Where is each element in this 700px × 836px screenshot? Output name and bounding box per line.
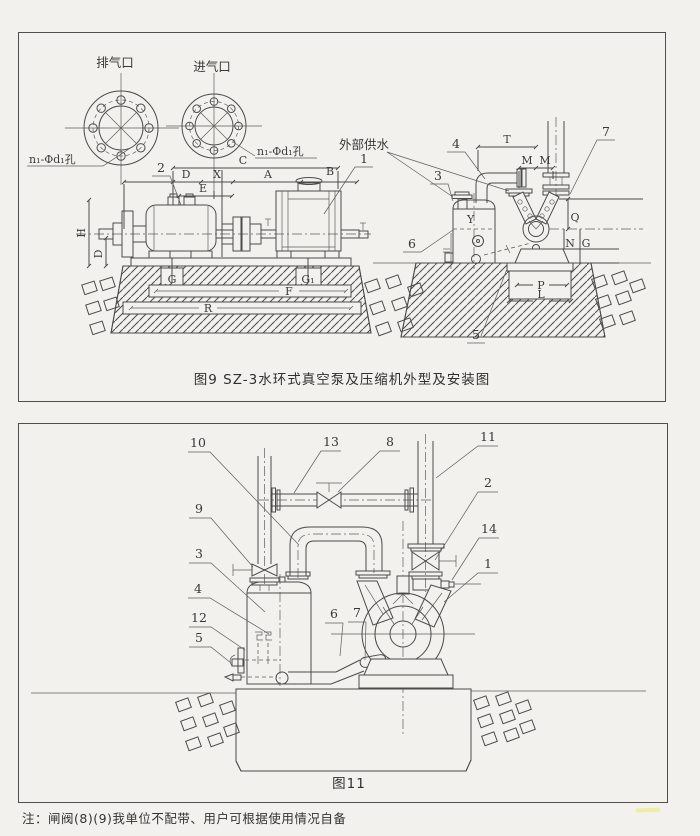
intake-port-label: 进气口 — [193, 59, 231, 74]
svg-text:12: 12 — [191, 610, 207, 625]
svg-text:2: 2 — [484, 475, 492, 490]
svg-text:n₁-Φd₁孔: n₁-Φd₁孔 — [29, 153, 76, 166]
fig11-callout-13: 13 — [294, 434, 341, 493]
foundation-right — [401, 263, 605, 337]
dim-F: F — [285, 285, 293, 298]
footnote: 注：闸阀(8)(9)我单位不配带、用户可根据使用情况自备 — [22, 808, 672, 827]
discharge-pipe-right — [408, 434, 481, 592]
dim-M2: M — [539, 154, 550, 167]
dim-A: A — [263, 168, 273, 181]
fig9-dimension-lines — [87, 166, 359, 268]
pump-fig11 — [331, 521, 475, 736]
soil-crosshatch-right — [592, 271, 646, 329]
svg-text:8: 8 — [386, 434, 394, 449]
fig11-callout-11: 11 — [436, 429, 498, 478]
svg-text:1: 1 — [484, 556, 492, 571]
dim-Q: Q — [570, 211, 579, 224]
dim-D2: D — [92, 249, 105, 258]
dim-F-line — [149, 285, 351, 297]
svg-text:11: 11 — [480, 429, 496, 444]
dim-H: H — [75, 228, 88, 238]
svg-text:6: 6 — [408, 236, 416, 251]
svg-text:9: 9 — [195, 501, 203, 516]
fig11-callout-5: 5 — [189, 630, 231, 663]
separator-tank-fig11 — [225, 574, 311, 686]
dim-Y: Y — [466, 213, 475, 226]
svg-text:5: 5 — [472, 327, 480, 342]
dim-T: T — [503, 133, 511, 146]
separator-tank-endview — [443, 192, 495, 269]
fig9-callout-3: 3 — [430, 168, 453, 201]
svg-text:4: 4 — [194, 581, 202, 596]
svg-text:4: 4 — [452, 136, 460, 151]
figure11-panel: 10 13 8 11 9 2 14 1 3 4 12 5 — [18, 423, 668, 803]
dim-R-line — [123, 302, 361, 314]
dim-X: X — [213, 168, 221, 181]
figure9-caption: 图9 SZ-3水环式真空泵及压缩机外型及安装图 — [194, 372, 490, 388]
fig11-callout-6: 6 — [325, 606, 343, 656]
dim-B: B — [326, 165, 334, 178]
exhaust-port-label: 排气口 — [96, 55, 134, 70]
dim-G1: G₁ — [301, 273, 314, 286]
dim-L: L — [537, 288, 545, 301]
svg-text:14: 14 — [481, 521, 497, 536]
baseplate — [131, 258, 351, 266]
bolt-hole-note-left: n₁-Φd₁孔 — [27, 145, 135, 166]
dim-G2: G — [582, 237, 591, 250]
foundation-left — [111, 266, 371, 333]
fig9-callout-4: 4 — [447, 136, 485, 179]
svg-text:5: 5 — [195, 630, 203, 645]
soil-crosshatch-right11 — [474, 692, 536, 746]
svg-text:n₁-Φd₁孔: n₁-Φd₁孔 — [257, 145, 304, 158]
fig11-callout-10: 10 — [188, 435, 299, 545]
fig9-callout-7: 7 — [570, 124, 615, 194]
svg-text:2: 2 — [157, 160, 165, 175]
motor-side-view — [99, 194, 216, 258]
svg-text:3: 3 — [434, 168, 442, 183]
fig11-callout-7: 7 — [348, 605, 366, 660]
fig11-callout-3: 3 — [189, 546, 265, 612]
pump-side-view — [276, 178, 368, 259]
fig11-callout-1: 1 — [444, 556, 498, 602]
u-pipe — [286, 527, 390, 579]
svg-text:13: 13 — [323, 434, 339, 449]
dim-R: R — [204, 302, 213, 315]
dim-G: G — [168, 273, 177, 286]
svg-text:外部供水: 外部供水 — [339, 137, 390, 152]
svg-text:6: 6 — [330, 606, 338, 621]
highlighter-smudge — [636, 808, 660, 813]
dim-E: E — [199, 182, 207, 195]
foundation-fig11 — [236, 689, 471, 771]
fig11-callout-14: 14 — [452, 521, 499, 580]
svg-text:7: 7 — [602, 124, 610, 139]
dim-N: N — [565, 237, 575, 250]
svg-text:1: 1 — [360, 151, 368, 166]
svg-text:10: 10 — [190, 435, 206, 450]
suction-pipe-left — [233, 448, 279, 591]
dim-M1: M — [521, 154, 532, 167]
pump-endview-fig9 — [507, 216, 573, 271]
fig11-callout-8: 8 — [338, 434, 400, 492]
v-manifold-endview — [506, 189, 569, 224]
dim-D: D — [182, 168, 191, 181]
svg-text:7: 7 — [353, 605, 361, 620]
figure11-caption: 图11 — [332, 776, 366, 792]
soil-crosshatch-left11 — [176, 693, 240, 751]
dim-C: C — [239, 154, 247, 167]
figure9-panel: 排气口 进气口 n₁-Φd₁孔 n₁-Φd₁孔 C D X A B E H D — [18, 32, 666, 402]
bypass-pipe — [259, 483, 431, 512]
svg-text:3: 3 — [195, 546, 203, 561]
